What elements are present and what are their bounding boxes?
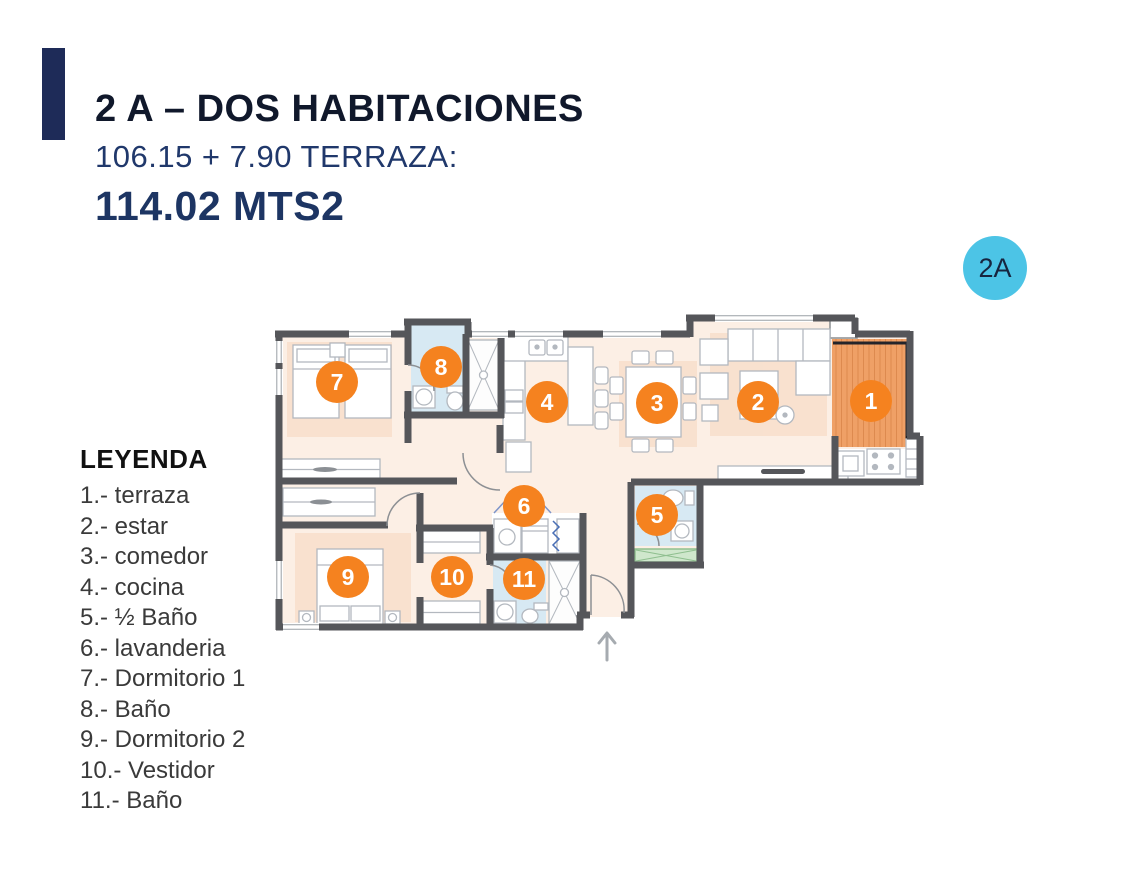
room-marker: 1 [850, 380, 892, 422]
room-marker: 11 [503, 558, 545, 600]
legend-item: 9.- Dormitorio 2 [80, 725, 245, 756]
svg-text:8: 8 [435, 354, 448, 380]
svg-text:9: 9 [342, 564, 355, 590]
floor-plan: 1234567891011 [263, 303, 943, 663]
total-area: 114.02 MTS2 [95, 183, 344, 230]
legend-item: 10.- Vestidor [80, 756, 245, 787]
legend-item: 7.- Dormitorio 1 [80, 664, 245, 695]
accent-bar [42, 48, 65, 140]
svg-text:3: 3 [651, 390, 664, 416]
room-marker: 7 [316, 361, 358, 403]
page-subtitle: 106.15 + 7.90 TERRAZA: [95, 139, 458, 175]
legend-item: 4.- cocina [80, 573, 245, 604]
svg-text:4: 4 [541, 389, 554, 415]
legend-item: 3.- comedor [80, 542, 245, 573]
page-title: 2 A – DOS HABITACIONES [95, 88, 584, 131]
legend-item: 1.- terraza [80, 481, 245, 512]
svg-text:10: 10 [439, 564, 465, 590]
svg-text:2: 2 [752, 389, 765, 415]
legend-heading: LEYENDA [80, 444, 245, 475]
legend-item: 8.- Baño [80, 695, 245, 726]
room-marker: 2 [737, 381, 779, 423]
legend-items: 1.- terraza 2.- estar 3.- comedor 4.- co… [80, 481, 245, 817]
legend-item: 11.- Baño [80, 786, 245, 817]
room-marker: 4 [526, 381, 568, 423]
legend-item: 6.- lavanderia [80, 634, 245, 665]
svg-text:11: 11 [512, 566, 537, 592]
svg-text:5: 5 [651, 502, 664, 528]
room-marker: 6 [503, 485, 545, 527]
room-marker: 10 [431, 556, 473, 598]
room-marker: 9 [327, 556, 369, 598]
legend-item: 5.- ½ Baño [80, 603, 245, 634]
svg-text:7: 7 [331, 369, 344, 395]
unit-badge-label: 2A [978, 253, 1011, 284]
closet-green [635, 549, 697, 562]
svg-text:6: 6 [518, 493, 531, 519]
legend-item: 2.- estar [80, 512, 245, 543]
legend: LEYENDA 1.- terraza 2.- estar 3.- comedo… [80, 444, 245, 817]
room-marker: 8 [420, 346, 462, 388]
svg-text:1: 1 [865, 388, 878, 414]
unit-badge: 2A [963, 236, 1027, 300]
room-marker: 5 [636, 494, 678, 536]
entrance-arrow-icon [599, 633, 615, 660]
room-marker: 3 [636, 382, 678, 424]
